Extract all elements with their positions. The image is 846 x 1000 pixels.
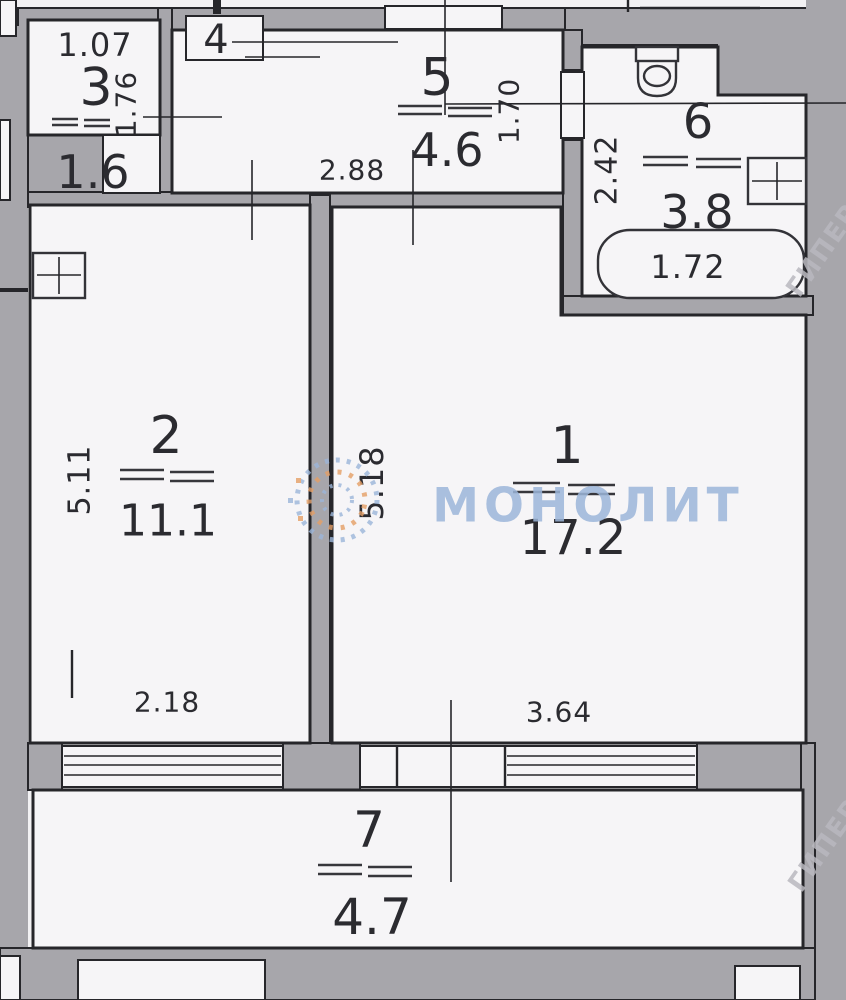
- room-2-area: 11.1: [119, 496, 217, 547]
- room-1-dim-bottom: 3.64: [526, 696, 592, 729]
- room-7-floor: [33, 790, 803, 948]
- room-7-area: 4.7: [332, 888, 412, 946]
- window-room-2: [62, 746, 283, 787]
- room-5-number: 5: [420, 48, 453, 108]
- floor-plan-drawing: 1.07 3 1.76 1.6 4 5 4.6 2.88 1.70 6 3.8 …: [0, 0, 846, 1000]
- balcony-notch: [735, 966, 800, 1000]
- balcony-notch: [0, 956, 20, 1000]
- room-3-number: 3: [79, 58, 112, 118]
- neighbour-fragment: [0, 120, 10, 200]
- wall-segment: [563, 30, 582, 70]
- toilet-tank-icon: [636, 47, 678, 61]
- floor-plan-scan: 1.07 3 1.76 1.6 4 5 4.6 2.88 1.70 6 3.8 …: [0, 0, 846, 1000]
- wall-segment: [563, 140, 582, 298]
- room-2-number: 2: [149, 406, 182, 466]
- room-2-dim-side: 5.11: [63, 445, 98, 516]
- room-6-number: 6: [683, 94, 714, 150]
- room-4-number: 4: [203, 17, 228, 63]
- room-7-number: 7: [353, 801, 385, 859]
- window-pier: [283, 743, 360, 790]
- wall-segment: [310, 195, 330, 745]
- window-room-1: [360, 746, 697, 787]
- entrance-opening: [385, 6, 502, 29]
- room-3-dim-side: 1.76: [110, 71, 143, 137]
- room-2-dim-bottom: 2.18: [134, 686, 200, 719]
- window-pier: [28, 743, 62, 790]
- wall-segment: [565, 8, 846, 45]
- room-3-area: 1.6: [56, 145, 129, 199]
- room-6-area: 3.8: [660, 185, 733, 239]
- room-5-dim-side: 1.70: [493, 78, 526, 144]
- neighbour-fragment: [0, 0, 16, 36]
- wall-segment: [718, 42, 814, 97]
- room-6-dim-side: 2.42: [590, 135, 625, 206]
- balcony-notch: [78, 960, 265, 1000]
- room-1-number: 1: [550, 416, 583, 476]
- wall-segment: [502, 8, 572, 30]
- watermark-brand: МОНОЛИТ: [432, 479, 743, 534]
- room-5-area: 4.6: [410, 123, 483, 177]
- bathtub-length-label: 1.72: [650, 248, 725, 286]
- room-6-doorway: [561, 72, 584, 138]
- toilet-bowl-icon: [644, 66, 670, 86]
- window-pier: [697, 743, 815, 790]
- room-5-dim-bottom: 2.88: [319, 154, 385, 187]
